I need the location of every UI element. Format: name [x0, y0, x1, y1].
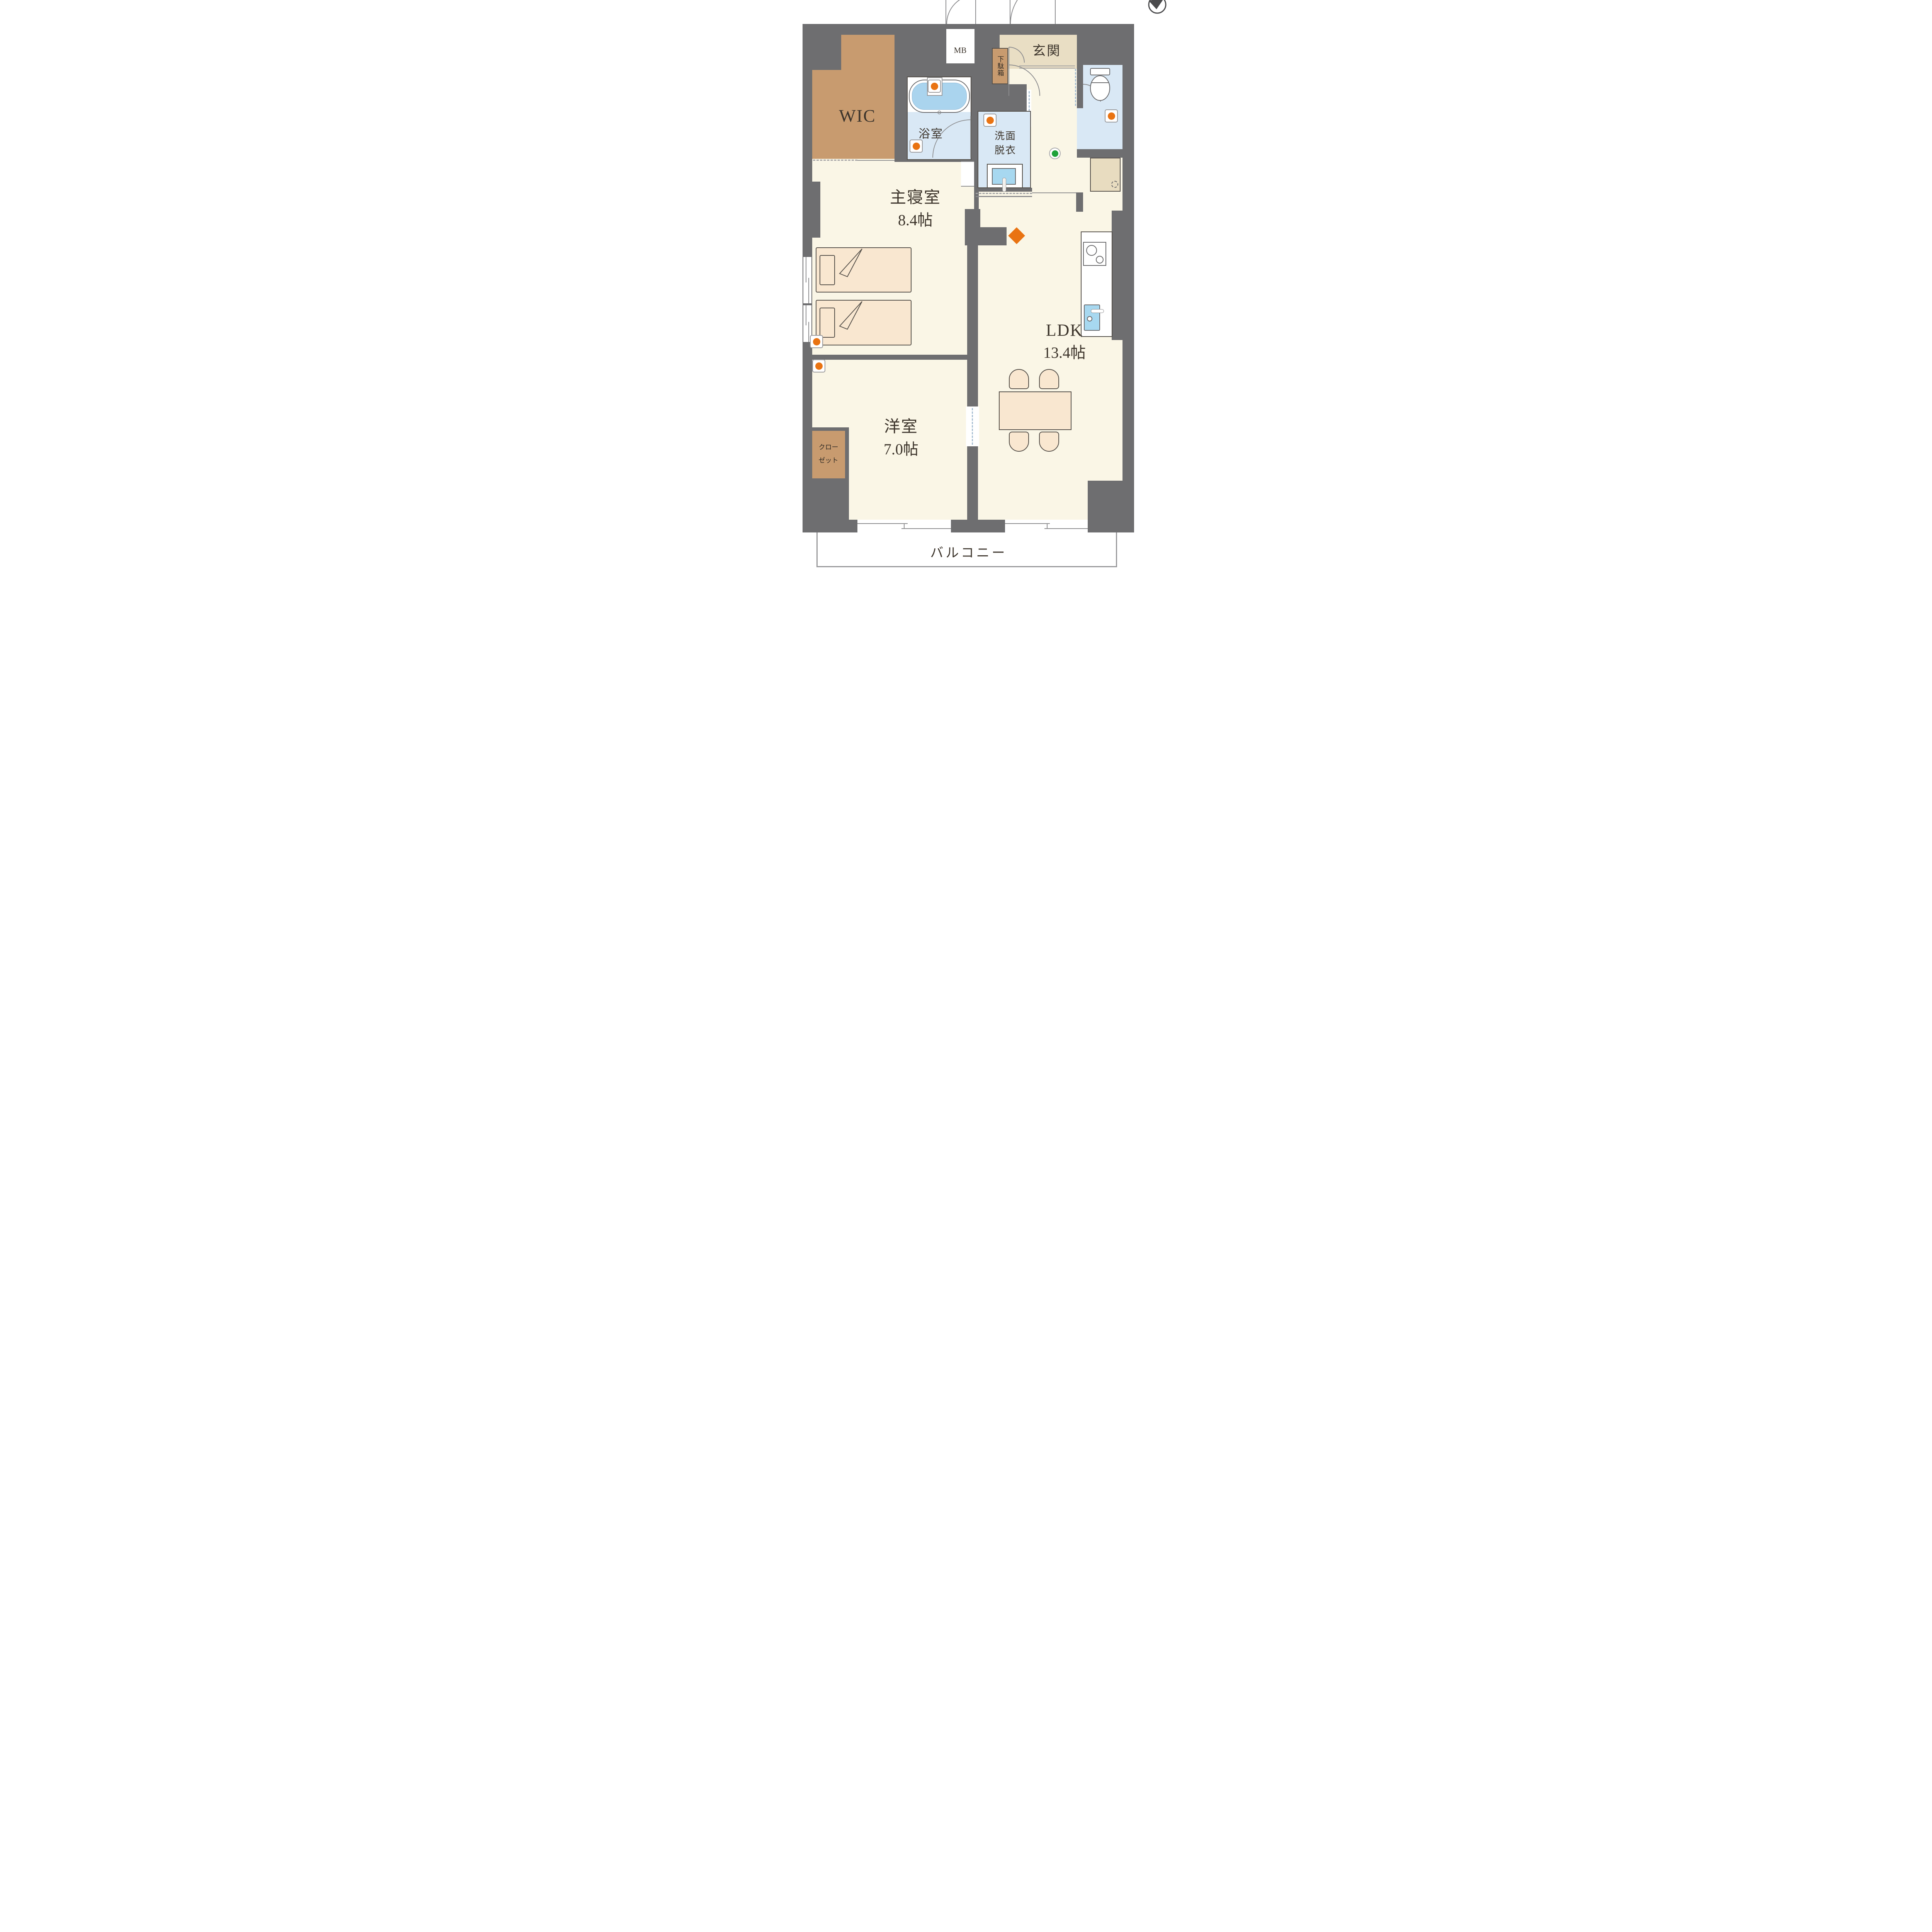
north-compass-icon [1149, 0, 1166, 13]
bedroom-door-opening [961, 161, 974, 187]
label-washroom-1: 洗面 [995, 131, 1016, 141]
floor-plan: 下駄箱 [752, 0, 1180, 570]
wall-toilet-bottom [1077, 149, 1122, 158]
kitchen-stove [1083, 242, 1106, 266]
corridor-ldk-line [1032, 192, 1076, 193]
dining-table [999, 391, 1071, 430]
room-closet [812, 431, 845, 478]
window-pane-tick [904, 523, 905, 529]
wic-opening-line [857, 160, 895, 161]
window-pane-line [808, 278, 809, 303]
wall-cabinet-stub [1076, 192, 1083, 212]
toilet-tank [1090, 68, 1110, 75]
label-mb: MB [954, 46, 967, 54]
wall-bedroom-western [812, 355, 978, 360]
wall-right [1122, 24, 1134, 532]
label-ldk: LDK [1046, 321, 1083, 339]
window-pane-line [1044, 528, 1088, 529]
label-closet-1: クロー [819, 444, 838, 451]
label-western-room-size: 7.0帖 [884, 441, 918, 457]
wall-closet-top [812, 427, 849, 431]
sensor-marker-icon [810, 335, 823, 348]
bed-1 [816, 247, 912, 293]
dining-chair [1009, 369, 1029, 389]
dining-chair [1009, 432, 1029, 452]
label-wic: WIC [839, 107, 876, 125]
window-pane-line [857, 523, 908, 524]
sensor-dot [815, 362, 823, 370]
wic-opening-dashed [813, 160, 857, 161]
label-master-bedroom: 主寝室 [890, 189, 941, 206]
room-toilet [1077, 65, 1122, 149]
label-washroom-2: 脱衣 [995, 145, 1016, 155]
kitchen-faucet-bar [1091, 309, 1104, 313]
sensor-marker-icon [928, 80, 941, 93]
window-pane-line [1005, 523, 1050, 524]
window-ldk-balcony [1005, 520, 1088, 532]
sensor-dot [913, 143, 920, 150]
window-pane-line [806, 257, 806, 282]
corridor-bedroom-dashed [976, 193, 1032, 194]
label-western-room: 洋室 [884, 418, 918, 435]
window-pane-tick [1047, 523, 1048, 529]
room-wic-upper [841, 33, 895, 70]
western-room-door-dash [972, 408, 973, 445]
wall-ldk-corner-block [1088, 481, 1134, 520]
sensor-dot [986, 117, 994, 124]
window-pane-line [901, 528, 951, 529]
wall-left-thick-bedroom [803, 182, 820, 238]
sensor-marker-icon [983, 114, 997, 127]
bed-2 [816, 300, 912, 345]
dining-chair [1039, 432, 1059, 452]
wall-closet-right [845, 427, 849, 478]
entrance-step-line [1019, 65, 1075, 66]
window-pane-line [808, 322, 809, 342]
sensor-dot [1108, 112, 1115, 120]
wall-corner-bottom-left [803, 478, 849, 532]
label-bathroom: 浴室 [918, 128, 943, 140]
label-ldk-size: 13.4帖 [1043, 345, 1086, 361]
green-sensor-icon [1049, 148, 1061, 159]
wall-bedroom-ldk [967, 209, 978, 355]
sensor-marker-icon [812, 359, 825, 372]
sensor-marker-icon [910, 139, 923, 153]
entrance-step-line [1019, 68, 1075, 69]
label-entrance: 玄関 [1032, 44, 1061, 58]
bed-2-pillow [820, 308, 835, 338]
label-balcony: バルコニー [930, 546, 1007, 560]
window-pane-line [806, 305, 806, 325]
sensor-marker-icon [1105, 109, 1118, 122]
wall-wic-notch [812, 35, 841, 70]
corridor-cabinet [1090, 158, 1121, 192]
label-master-bedroom-size: 8.4帖 [898, 212, 933, 228]
corridor-bedroom-line [976, 196, 1032, 197]
shoe-cabinet: 下駄箱 [992, 48, 1008, 84]
entrance-corridor-dashed [1075, 69, 1076, 106]
washroom-sink-cabinet [987, 164, 1023, 188]
sensor-dot [813, 338, 820, 345]
wall-below-shoebox [1000, 84, 1027, 111]
shoe-cabinet-label: 下駄箱 [995, 56, 1005, 77]
wall-toilet-top [1082, 35, 1122, 65]
kitchen-faucet-circle [1087, 316, 1092, 321]
wall-bath-left [895, 77, 907, 159]
washroom-sink-faucet [1002, 178, 1006, 192]
wall-kitchen-back [1112, 211, 1122, 340]
dining-chair [1039, 369, 1059, 389]
bed-1-pillow [820, 255, 835, 285]
wall-corridor-L-arm [980, 227, 1007, 245]
sensor-dot [931, 83, 938, 90]
cabinet-knob-circle [1111, 181, 1118, 188]
window-bedroom-left-1 [803, 257, 811, 303]
label-closet-2: ゼット [819, 457, 838, 464]
green-dot [1052, 150, 1058, 157]
